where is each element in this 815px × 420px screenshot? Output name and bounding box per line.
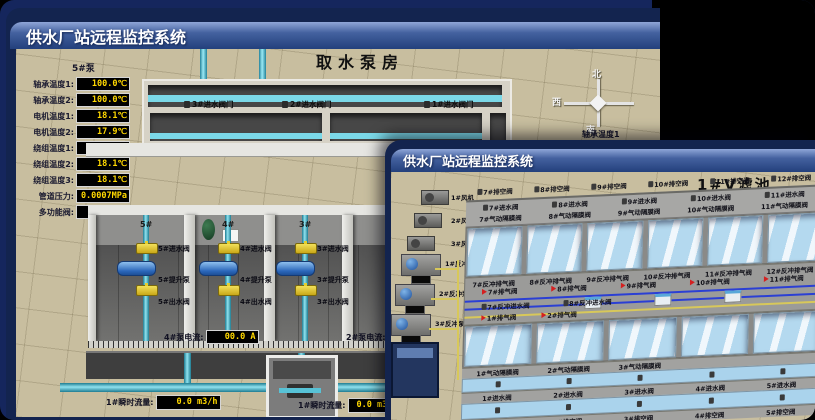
- reading-row: 电机温度1: 18.1℃: [22, 109, 132, 123]
- bay-label: 4#: [222, 220, 234, 229]
- valve-icon[interactable]: [780, 394, 785, 400]
- valve-icon[interactable]: [708, 398, 713, 404]
- filter-cell[interactable]: [466, 226, 522, 277]
- front-window-title: 供水厂站远程监控系统: [403, 151, 533, 170]
- valve-icon: [534, 186, 539, 192]
- valve-icon: [424, 101, 430, 108]
- filter-grid: 7#排空阀8#排空阀9#排空阀10#排空阀11#排空阀12#排空阀 7#进水阀8…: [461, 172, 815, 416]
- inlet-valve-label: 4#进水阀: [240, 244, 272, 254]
- pipe-icon: [429, 328, 457, 330]
- intake-valve[interactable]: 2#进水阀门: [282, 99, 332, 110]
- drain-valve[interactable]: 9#排空阀: [591, 180, 627, 192]
- drain-valve-label: 12#排空阀: [777, 172, 811, 183]
- exhaust-valve[interactable]: 8#排气阀: [551, 282, 587, 294]
- valve-icon: [282, 101, 288, 108]
- alarm-flag-icon: [764, 276, 769, 282]
- intake-water: [150, 133, 322, 139]
- valve-icon[interactable]: [780, 368, 785, 374]
- exhaust-valve[interactable]: 10#排气阀: [690, 276, 730, 288]
- pipe-icon: [143, 215, 149, 341]
- filter-cell[interactable]: [527, 223, 583, 274]
- reading-value: 18.1℃: [76, 157, 130, 171]
- intake-valve-label: 2#进水阀门: [290, 99, 332, 110]
- drain-valve[interactable]: 11#排空阀: [710, 175, 750, 187]
- inlet-valve[interactable]: 10#进水阀: [691, 191, 731, 203]
- back-window-title: 供水厂站远程监控系统: [26, 24, 186, 48]
- exhaust-valve-label: 8#排气阀: [557, 282, 587, 293]
- valve-icon[interactable]: [495, 407, 500, 413]
- inlet-valve-icon[interactable]: [295, 243, 317, 254]
- valve-icon: [483, 204, 488, 210]
- lift-pump-icon[interactable]: [199, 261, 238, 276]
- meter-valve-icon: [287, 384, 313, 398]
- drain-valve[interactable]: 7#排空阀: [477, 185, 513, 197]
- background-corner: [652, 0, 815, 140]
- pump2-current-readout: 2#泵电流:: [346, 332, 385, 343]
- pipe-icon: [184, 353, 191, 385]
- compass-center: [590, 95, 607, 112]
- outlet-valve-icon[interactable]: [295, 285, 317, 296]
- filter-cell[interactable]: [647, 218, 703, 269]
- drain-valve-label: 8#排空阀: [540, 183, 570, 194]
- main-pipe-icon: [60, 383, 410, 392]
- pipe-icon: [302, 215, 308, 341]
- lift-pump-label: 5#提升泵: [158, 275, 190, 285]
- backwash-inlet-valve-label: 8#反冲进水阀: [569, 296, 612, 308]
- blower-icon[interactable]: [414, 213, 442, 228]
- exhaust-valve[interactable]: 2#排气阀: [541, 309, 577, 321]
- drain-valve-label: 7#排空阀: [483, 185, 513, 196]
- flow-label: 1#瞬时流量:: [298, 400, 345, 411]
- backwash-pump-icon[interactable]: [391, 314, 431, 336]
- lift-pump-icon[interactable]: [276, 261, 315, 276]
- pump5-readings-panel: 5#泵 轴承温度1: 100.0℃ 轴承温度2: 100.0℃ 电机温度1: 1…: [22, 61, 132, 221]
- drain-valve-label: 4#排空阀: [674, 408, 745, 420]
- valve-icon[interactable]: [638, 375, 643, 381]
- alarm-flag-icon: [481, 315, 486, 321]
- filter-cell[interactable]: [707, 215, 763, 266]
- drain-valve-label: 2#排空阀: [532, 415, 603, 420]
- front-window-titlebar: 供水厂站远程监控系统: [391, 149, 815, 172]
- filter-pool-scene: 1#V滤池 1#风机 2#风机 3#风机 1#反: [391, 172, 815, 420]
- drain-valve-label: 5#排空阀: [745, 405, 815, 418]
- window-filter-pool[interactable]: 供水厂站远程监控系统 1#V滤池 1#风机 2#风机 3#风机: [385, 140, 815, 420]
- lift-pump-icon[interactable]: [117, 261, 156, 276]
- inlet-valve-icon[interactable]: [218, 243, 240, 254]
- inlet-valve-label: 10#进水阀: [697, 191, 731, 203]
- scada-canvas: 供水厂站远程监控系统 取水泵房 5#泵 轴承温度1: 100.0℃ 轴承温度2:…: [0, 0, 815, 420]
- exhaust-valve-label: 7#排气阀: [488, 285, 518, 296]
- lift-pump-label: 4#提升泵: [240, 275, 272, 285]
- reading-label: 绕组温度1:: [22, 143, 74, 154]
- reading-value: 17.9℃: [76, 125, 130, 139]
- filter-cell[interactable]: [464, 324, 532, 367]
- exhaust-valve-label: 11#排气阀: [770, 272, 804, 284]
- lift-pump-label: 3#提升泵: [317, 275, 349, 285]
- alarm-flag-icon: [621, 282, 626, 288]
- inlet-valve-label: 7#进水阀: [489, 201, 519, 212]
- reading-label: 电机温度1:: [22, 111, 74, 122]
- reading-row: 轴承温度1: 100.0℃: [22, 77, 132, 91]
- flow-readout-left: 1#瞬时流量: 0.0 m3/h: [106, 395, 221, 410]
- reading-label: 多功能阀:: [22, 207, 74, 218]
- alarm-flag-icon: [482, 289, 487, 295]
- reading-value: 0.0007MPa: [76, 189, 130, 203]
- outlet-valve-icon[interactable]: [136, 285, 158, 296]
- valve-icon: [691, 195, 696, 201]
- reading-label: 绕组温度2:: [22, 159, 74, 170]
- bay-label: 3#: [299, 220, 311, 229]
- reading-row: 管道压力: 0.0007MPa: [22, 189, 132, 203]
- drain-valve-label: 9#排空阀: [597, 180, 627, 191]
- intake-valve[interactable]: 3#进水阀门: [184, 99, 234, 110]
- flow-value: 0.0 m3/h: [156, 395, 221, 410]
- reading-value: 18.1℃: [76, 173, 130, 187]
- inlet-valve-label: 3#进水阀: [317, 244, 349, 254]
- pipe-icon: [435, 268, 457, 270]
- alarm-flag-icon: [690, 279, 695, 285]
- reading-value: 100.0℃: [76, 77, 130, 91]
- valve-icon: [552, 201, 557, 207]
- status-readout: [405, 305, 425, 314]
- valve-icon[interactable]: [496, 381, 501, 387]
- diaphragm-valve-label: 7#气动隔膜阀: [479, 212, 522, 224]
- valve-icon[interactable]: [637, 401, 642, 407]
- bay-label: 5#: [140, 220, 152, 229]
- valve-icon: [481, 304, 486, 310]
- reading-label: 管道压力:: [22, 191, 74, 202]
- drain-valve[interactable]: 10#排空阀: [648, 177, 688, 189]
- reading-row: 绕组温度2: 18.1℃: [22, 157, 132, 171]
- outlet-valve-label: 5#出水阀: [158, 297, 190, 307]
- drain-structure: [391, 342, 439, 398]
- diaphragm-valve-label: 8#气动隔膜阀: [548, 208, 591, 220]
- pipe-icon: [457, 260, 459, 380]
- valve-icon[interactable]: [709, 371, 714, 377]
- blower-icon[interactable]: [421, 190, 449, 205]
- intake-valve[interactable]: 1#进水阀门: [424, 99, 474, 110]
- current-label: 4#泵电流:: [164, 332, 203, 343]
- drain-valve[interactable]: 8#排空阀: [534, 183, 570, 195]
- valve-icon[interactable]: [566, 404, 571, 410]
- filter-cell[interactable]: [753, 311, 815, 354]
- reading-label: 绕组温度3:: [22, 175, 74, 186]
- valve-icon: [591, 184, 596, 190]
- tank-icon: [654, 293, 671, 306]
- valve-icon: [563, 300, 568, 306]
- flow-label: 1#瞬时流量:: [106, 397, 153, 408]
- drain-valve-label: 11#排空阀: [716, 175, 750, 187]
- pump4-current-readout: 4#泵电流: 00.0 A: [164, 330, 259, 344]
- valve-icon: [477, 189, 482, 195]
- reading-row: 电机温度2: 17.9℃: [22, 125, 132, 139]
- outlet-valve-label: 3#出水阀: [317, 297, 349, 307]
- right-panel-label: 轴承温度1: [582, 129, 620, 140]
- intake-channel: [490, 113, 506, 141]
- meter-panel: [273, 361, 331, 379]
- backwash-pump-label: 3#反冲泵: [435, 318, 464, 328]
- inlet-valve-label: 9#进水阀: [628, 194, 658, 205]
- exhaust-valve-label: 2#排气阀: [547, 309, 577, 320]
- tank-icon: [202, 219, 215, 240]
- status-readout: [411, 275, 431, 284]
- reading-value: 18.1℃: [76, 109, 130, 123]
- compass-icon: 北 西 南: [556, 71, 648, 137]
- inlet-valve-label: 11#进水阀: [771, 188, 805, 200]
- valve-icon[interactable]: [567, 378, 572, 384]
- reading-label: 轴承温度1:: [22, 79, 74, 90]
- reading-label: 电机温度2:: [22, 127, 74, 138]
- outlet-valve-label: 4#出水阀: [240, 297, 272, 307]
- valve-icon: [648, 181, 653, 187]
- filter-cell[interactable]: [536, 320, 604, 363]
- outlet-valve-icon[interactable]: [218, 285, 240, 296]
- filter-cell[interactable]: [767, 212, 815, 263]
- pipe-icon: [431, 298, 457, 300]
- drain-valve-label: 10#排空阀: [654, 177, 688, 189]
- inlet-valve-label: 5#进水阀: [158, 244, 190, 254]
- filter-cell[interactable]: [608, 317, 676, 360]
- column: [88, 215, 96, 341]
- valve-icon: [622, 198, 627, 204]
- inlet-valve[interactable]: 9#进水阀: [622, 194, 658, 206]
- current-label: 2#泵电流:: [346, 332, 385, 343]
- backwash-inlet-valve-label: 7#反冲进水阀: [487, 300, 530, 312]
- inlet-valve[interactable]: 7#进水阀: [483, 201, 519, 213]
- compass-north: 北: [592, 67, 601, 80]
- backwash-pump-icon[interactable]: [401, 254, 441, 276]
- valve-icon: [771, 175, 776, 181]
- intake-water: [330, 133, 482, 139]
- pipe-icon: [225, 215, 231, 341]
- inlet-valve[interactable]: 8#进水阀: [552, 198, 588, 210]
- diaphragm-valve-label: 10#气动隔膜阀: [687, 202, 734, 214]
- inlet-valve-label: 8#进水阀: [558, 198, 588, 209]
- reading-row: 轴承温度2: 100.0℃: [22, 93, 132, 107]
- blower-icon[interactable]: [407, 236, 435, 251]
- valve-icon: [710, 178, 715, 184]
- compass-west: 西: [552, 95, 561, 108]
- backwash-inlet-valve[interactable]: 8#反冲进水阀: [563, 296, 612, 308]
- inlet-valve-icon[interactable]: [136, 243, 158, 254]
- filter-cell[interactable]: [587, 221, 643, 272]
- exhaust-valve[interactable]: 1#排气阀: [481, 311, 517, 323]
- valve-icon: [765, 191, 770, 197]
- alarm-flag-icon: [551, 286, 556, 292]
- valve-icon: [184, 101, 190, 108]
- reading-label: 轴承温度2:: [22, 95, 74, 106]
- inlet-valve[interactable]: 11#进水阀: [765, 188, 805, 200]
- back-window-titlebar: 供水厂站远程监控系统: [10, 22, 660, 49]
- pump5-panel-header: 5#泵: [72, 61, 132, 74]
- exhaust-valve-label: 10#排气阀: [696, 276, 730, 288]
- exhaust-valve-label: 9#排气阀: [626, 279, 656, 290]
- current-value: 00.0 A: [206, 330, 259, 344]
- exhaust-valve-label: 1#排气阀: [487, 311, 517, 322]
- backwash-pump-icon[interactable]: [395, 284, 435, 306]
- reading-row: 绕组温度3: 18.1℃: [22, 173, 132, 187]
- alarm-flag-icon: [541, 312, 546, 318]
- diaphragm-valve-label: 11#气动隔膜阀: [761, 199, 808, 211]
- intake-valve-label: 1#进水阀门: [432, 99, 474, 110]
- reading-value: 100.0℃: [76, 93, 130, 107]
- drain-valve-label: 3#排空阀: [603, 411, 674, 420]
- scene-title-intake: 取水泵房: [316, 49, 404, 73]
- diaphragm-valve-label: 9#气动隔膜阀: [618, 205, 661, 217]
- tank-icon: [724, 290, 741, 303]
- pipe-gallery: [86, 351, 436, 379]
- intake-valve-label: 3#进水阀门: [192, 99, 234, 110]
- exhaust-valve[interactable]: 9#排气阀: [620, 279, 656, 291]
- roof-pipe-icon: [200, 49, 207, 81]
- filter-cell[interactable]: [681, 314, 749, 357]
- drain-valve[interactable]: 12#排空阀: [771, 172, 811, 184]
- exhaust-valve[interactable]: 11#排气阀: [764, 272, 804, 284]
- exhaust-valve[interactable]: 7#排气阀: [482, 285, 518, 297]
